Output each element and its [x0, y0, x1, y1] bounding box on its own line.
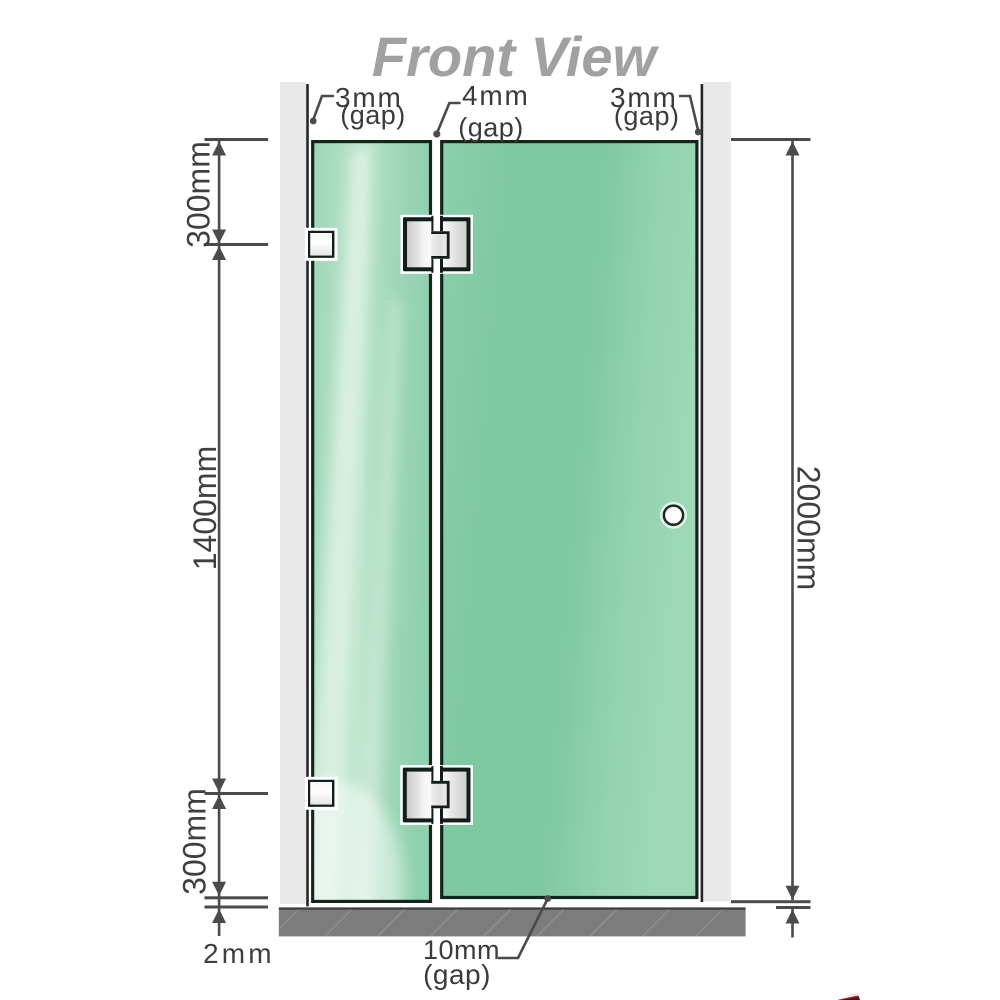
svg-text:(gap): (gap)	[423, 959, 491, 990]
svg-text:300mm: 300mm	[177, 788, 213, 895]
svg-text:(gap): (gap)	[458, 113, 524, 143]
svg-text:1400mm: 1400mm	[187, 446, 223, 571]
svg-text:300mm: 300mm	[181, 141, 217, 248]
svg-text:(gap): (gap)	[614, 101, 680, 131]
svg-text:4mm: 4mm	[462, 80, 530, 111]
svg-text:2mm: 2mm	[203, 938, 275, 969]
svg-text:(gap): (gap)	[340, 100, 406, 130]
svg-text:Front View: Front View	[372, 25, 660, 88]
svg-text:2000mm: 2000mm	[791, 466, 827, 591]
